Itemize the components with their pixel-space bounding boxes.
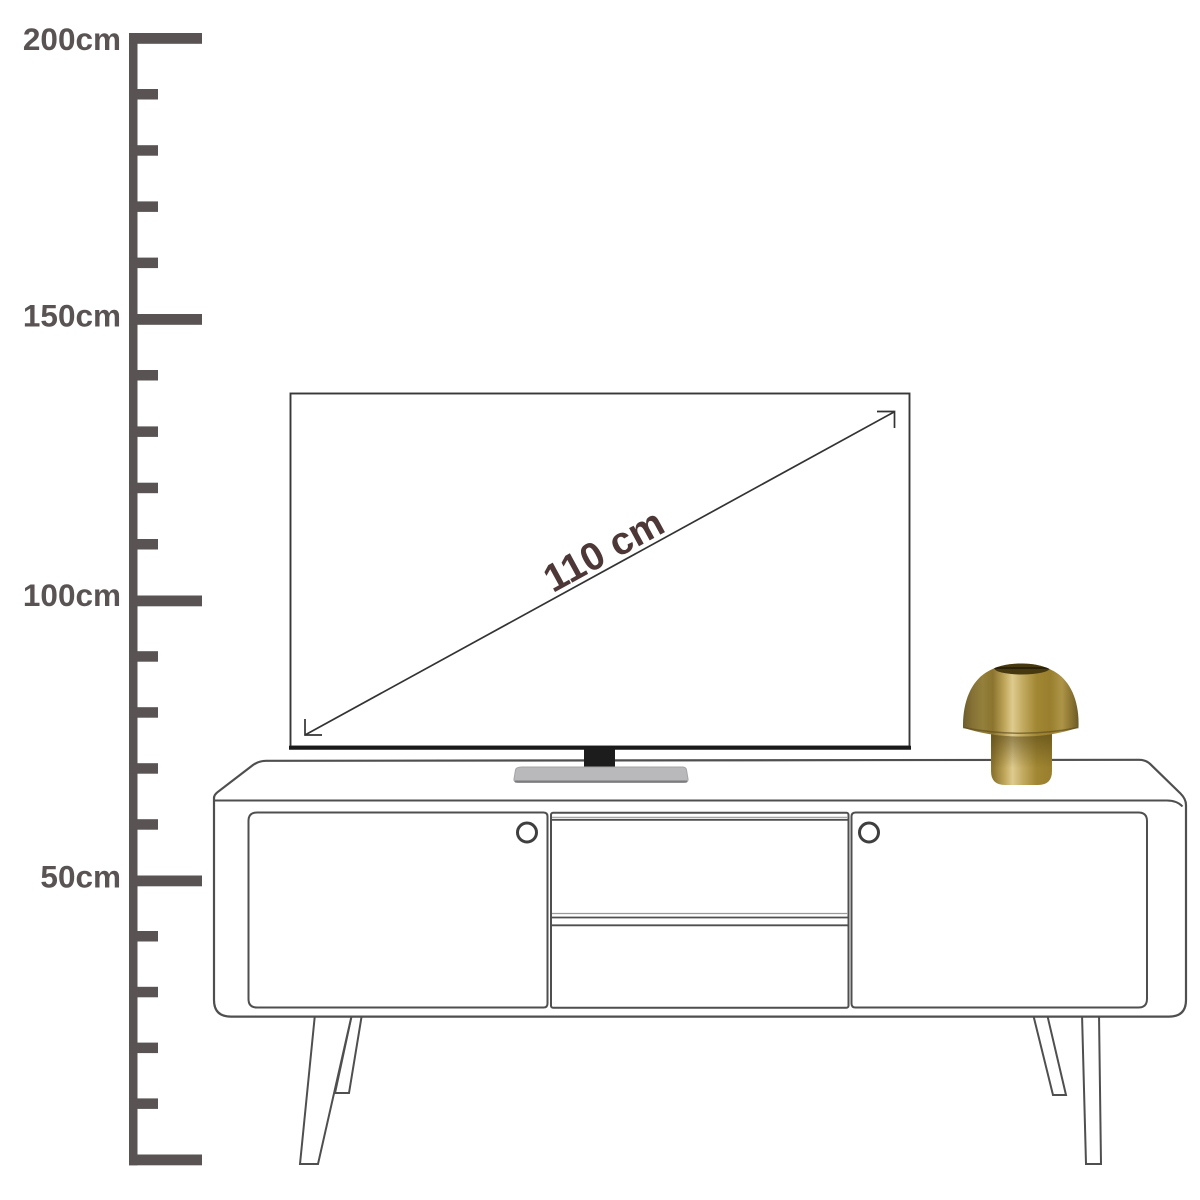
svg-text:50cm: 50cm: [40, 859, 121, 895]
svg-text:150cm: 150cm: [23, 298, 121, 334]
svg-text:200cm: 200cm: [23, 21, 121, 57]
svg-text:100cm: 100cm: [23, 577, 121, 613]
